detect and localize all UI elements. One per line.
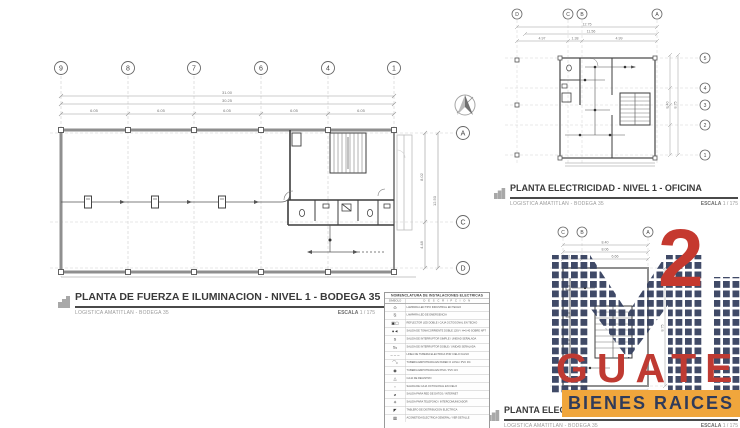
legend-symbol: △ <box>385 375 406 382</box>
grid-bubble-label: 4 <box>326 66 330 73</box>
dim-right-upper: 8.02 <box>419 172 424 181</box>
legend-row: ◤TABLERO DE DISTRIBUCION ELECTRICA <box>385 406 489 414</box>
grid-bubble-label: 7 <box>192 66 196 73</box>
stair-steps <box>334 133 362 173</box>
legend-desc: REFLECTOR LED DOBLE / CAJA OCTOGONAL EN … <box>406 322 490 325</box>
legend-col-symbol: SIMBOLO <box>385 299 406 303</box>
plan-title: PLANTA ELECTRICIDAD - NIVEL 1 - OFICINA <box>510 183 702 193</box>
grid-bubble-label: C <box>460 220 465 227</box>
scale-value: 1 / 175 <box>360 310 375 316</box>
dim-bay: 4.99 <box>616 37 623 41</box>
nivel2-floor-plan: C B A 8.40 8.06 1.35 6.66 <box>520 218 740 398</box>
legend-symbol: ●◄ <box>385 328 406 335</box>
grid-bubble-label: 1 <box>392 66 396 73</box>
grid-bubbles-top: 9 8 7 6 4 1 <box>55 62 401 75</box>
legend-row: ▫SALIDA DE CAJA OCTOGONAL EN CIELO <box>385 382 489 390</box>
grid-bubbles-right: 5 4 3 2 1 <box>700 53 710 160</box>
legend-row: ✳SALIDA PARA TELEFONO / INTERCOMUNICADOR <box>385 398 489 406</box>
grid-lines <box>550 238 690 393</box>
legend-symbol: ✳ <box>385 399 406 406</box>
oficina-floor-plan: D C B A 12.75 11.56 4.97 1.38 4.99 <box>495 5 740 177</box>
legend-header: SIMBOLO D E S C R I P C I O N <box>385 299 489 304</box>
dim-right-total: 8.75 <box>674 102 678 109</box>
dim-right-total: 8.75 <box>661 325 665 332</box>
oficina-title-block: PLANTA ELECTRICIDAD - NIVEL 1 - OFICINA … <box>494 178 738 207</box>
legend-desc: TUBERIA EMPOTRADA EN PARED O LOSA / PVC … <box>406 362 490 365</box>
north-arrow-icon <box>455 95 475 115</box>
lighting-circuit <box>61 193 290 208</box>
grid-lines <box>505 20 700 165</box>
power-circuit <box>307 225 385 254</box>
grid-bubbles-top: D C B A <box>512 9 662 19</box>
columns <box>515 56 657 160</box>
interior-walls <box>560 58 650 158</box>
plan-subtitle: LOGISTICA AMATITLAN - BODEGA 35 <box>510 201 604 207</box>
plan-title: PLANTA DE FUERZA E ILUMINACION - NIVEL 1… <box>75 291 380 303</box>
legend-desc: SALIDA DE CAJA OCTOGONAL EN CIELO <box>406 385 490 388</box>
legend-symbol: ◤ <box>385 407 406 414</box>
plan-subtitle: LOGISTICA AMATITLAN - BODEGA 35 <box>75 310 169 316</box>
dim-inner: 11.56 <box>587 30 596 34</box>
legend-desc: LAMPARA LED TIPO INDUSTRIAL EN TECHO <box>406 306 490 309</box>
plan-subtitle: LOGISTICA AMATITLAN - BODEGA 35 <box>504 423 598 428</box>
legend-symbol: S₂ <box>385 343 406 350</box>
legend-symbol: – – – <box>385 351 406 358</box>
legend-row: ◉TUBERIA EMPOTRADA EN PISO / PVC 3/4 <box>385 367 489 375</box>
scale-value: 1 / 175 <box>723 423 738 428</box>
dim-bay: 6.05 <box>223 108 232 113</box>
legend-symbol: ▫ <box>385 383 406 390</box>
stair-steps <box>595 306 632 358</box>
bodega-title-block: PLANTA DE FUERZA E ILUMINACION - NIVEL 1… <box>58 287 416 316</box>
legend-symbol: S <box>385 336 406 343</box>
dim-right-inner: 8.40 <box>666 102 670 109</box>
dimension-lines-top <box>515 25 659 43</box>
scale-label: ESCALA <box>701 201 722 207</box>
electrical-legend: NOMENCLATURA DE INSTALACIONES ELECTRICAS… <box>384 292 490 428</box>
dim-total: 31.00 <box>222 90 233 95</box>
dim-bay: 6.05 <box>290 108 299 113</box>
legend-desc: SALIDA PARA TELEFONO / INTERCOMUNICADOR <box>406 401 490 404</box>
legend-row: SSALIDA DE INTERRUPTOR SIMPLE / UNIDAD S… <box>385 335 489 343</box>
legend-desc: ACOMETIDA ELECTRICA GENERAL / VER DETALL… <box>406 417 490 420</box>
dim-bay: 1.35 <box>569 255 576 259</box>
nivel2-title-block: PLANTA ELECTR LOGISTICA AMATITLAN - BODE… <box>488 400 738 428</box>
grid-bubble-label: 8 <box>126 66 130 73</box>
dim-bay: 1.38 <box>572 37 579 41</box>
legend-symbol: ⊙ <box>385 304 406 311</box>
grid-bubble-label: D <box>460 266 465 273</box>
legend-symbol: ▨ <box>385 415 406 422</box>
dim-right-total: 12.50 <box>432 195 437 206</box>
grid-bubble-label: A <box>461 131 466 138</box>
building-icon <box>494 187 506 199</box>
stair-steps <box>620 93 650 125</box>
dim-bay: 6.66 <box>612 255 619 259</box>
legend-desc: SALIDA DE INTERRUPTOR SIMPLE / UNIDAD SE… <box>406 338 490 341</box>
legend-row: ●◄SALIDA DE TOMACORRIENTE DOBLE 120V / H… <box>385 327 489 335</box>
legend-desc: LINEA DE TUBERIA ELECTRICA POR CIELO FAL… <box>406 354 490 357</box>
legend-symbol: ◉ <box>385 367 406 374</box>
legend-row: ⊙LAMPARA LED TIPO INDUSTRIAL EN TECHO <box>385 304 489 312</box>
dim-inner: 30.25 <box>222 98 233 103</box>
legend-symbol: ⍉ <box>385 312 406 319</box>
legend-row: ▣▢REFLECTOR LED DOBLE / CAJA OCTOGONAL E… <box>385 319 489 327</box>
legend-row: ⌒•TUBERIA EMPOTRADA EN PARED O LOSA / PV… <box>385 359 489 367</box>
legend-desc: SALIDA DE TOMACORRIENTE DOBLE 120V / H=0… <box>406 330 490 333</box>
grid-bubbles-right: A C D <box>457 127 470 275</box>
dimension-labels-right: 8.02 4.48 12.50 <box>419 172 437 249</box>
exterior-walls <box>61 130 416 277</box>
right-annex <box>397 135 412 230</box>
grid-bubble-label: 6 <box>259 66 263 73</box>
dim-total: 12.75 <box>583 23 592 27</box>
dim-total: 8.40 <box>602 241 609 245</box>
grid-bubble-label: 9 <box>59 66 63 73</box>
legend-symbol: ⌒• <box>385 359 406 366</box>
legend-row: S₂SALIDA DE INTERRUPTOR DOBLE / UNIDAD S… <box>385 343 489 351</box>
legend-desc: TABLERO DE DISTRIBUCION ELECTRICA <box>406 409 490 412</box>
legend-row: △CAJA DE REGISTRO <box>385 375 489 383</box>
exterior-walls <box>560 58 655 166</box>
legend-row: ⌀SALIDA PARA RED DE DATOS / INTERNET <box>385 390 489 398</box>
legend-row: ▨ACOMETIDA ELECTRICA GENERAL / VER DETAL… <box>385 414 489 422</box>
exterior-walls <box>563 268 648 390</box>
dim-bay: 4.97 <box>539 37 546 41</box>
legend-row: – – –LINEA DE TUBERIA ELECTRICA POR CIEL… <box>385 351 489 359</box>
grid-bubble-label: 5 <box>704 56 707 62</box>
grid-bubble-label: C <box>566 12 570 18</box>
bodega-floor-plan: 9 8 7 6 4 1 31.00 30.25 6.05 6.05 6.05 6… <box>40 55 490 287</box>
dim-inner: 8.06 <box>602 248 609 252</box>
grid-bubbles-top: C B A <box>558 227 653 237</box>
legend-row: ⍉LAMPARA LED DE EMERGENCIA <box>385 311 489 319</box>
grid-bubble-label: 1 <box>704 153 707 159</box>
scale-label: ESCALA <box>338 310 359 316</box>
legend-symbol: ⌀ <box>385 391 406 398</box>
legend-desc: SALIDA PARA RED DE DATOS / INTERNET <box>406 393 490 396</box>
legend-desc: TUBERIA EMPOTRADA EN PISO / PVC 3/4 <box>406 370 490 373</box>
dimension-labels-top: 8.40 8.06 1.35 6.66 <box>569 241 619 259</box>
dimension-labels-top: 31.00 30.25 6.05 6.05 6.05 6.05 6.05 <box>90 90 366 113</box>
grid-bubble-label: 2 <box>704 123 707 129</box>
dim-bay: 6.05 <box>90 108 99 113</box>
grid-bubble-label: 4 <box>704 86 707 92</box>
interior-walls <box>570 278 632 378</box>
dim-bay: 6.05 <box>357 108 366 113</box>
building-icon <box>58 295 71 308</box>
wiring <box>566 286 610 369</box>
grid-bubble-label: C <box>561 230 565 236</box>
dim-right-lower: 4.48 <box>419 240 424 249</box>
legend-desc: SALIDA DE INTERRUPTOR DOBLE / UNIDAD SEÑ… <box>406 346 490 349</box>
blueprint-sheet: 9 8 7 6 4 1 31.00 30.25 6.05 6.05 6.05 6… <box>0 0 740 428</box>
plan-title: PLANTA ELECTR <box>504 405 578 415</box>
legend-symbol: ▣▢ <box>385 320 406 327</box>
scale-label: ESCALA <box>701 423 722 428</box>
grid-bubble-label: D <box>515 12 519 18</box>
legend-col-desc: D E S C R I P C I O N <box>406 299 490 303</box>
dimension-labels-top: 12.75 11.56 4.97 1.38 4.99 <box>539 23 623 41</box>
bath-fixtures <box>284 189 390 217</box>
dim-bay: 6.05 <box>157 108 166 113</box>
legend-desc: LAMPARA LED DE EMERGENCIA <box>406 314 490 317</box>
grid-lines <box>50 76 470 277</box>
legend-desc: CAJA DE REGISTRO <box>406 377 490 380</box>
grid-bubble-label: 3 <box>704 103 707 109</box>
scale-value: 1 / 175 <box>723 201 738 207</box>
